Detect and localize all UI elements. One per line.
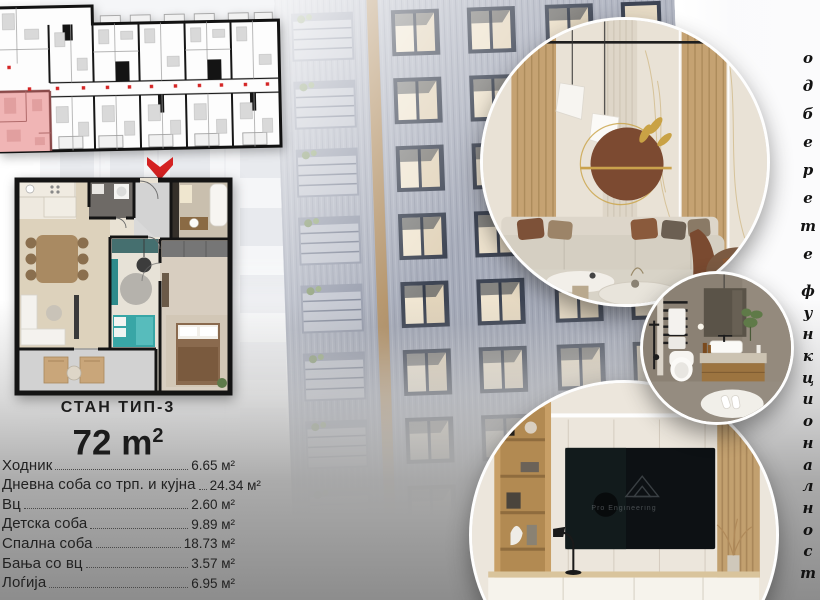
margin-letter: и <box>803 389 814 411</box>
brochure-page: СТАН ТИП-3 72 m2 Ходник 6.65 м² Дневна с… <box>0 0 820 600</box>
margin-letter: л <box>803 476 814 498</box>
margin-letter: ц <box>802 368 814 390</box>
margin-letter: б <box>803 100 814 128</box>
margin-letter: т <box>800 212 816 240</box>
dotted-leader <box>55 469 188 470</box>
margin-letter: н <box>803 433 814 455</box>
margin-letter: д <box>803 72 813 100</box>
room-row: Детска соба 9.89 м² <box>2 513 235 533</box>
margin-vertical-text: одберетефункционалност <box>797 44 819 585</box>
margin-letter: т <box>800 563 816 585</box>
apartment-floor-plan <box>14 177 233 396</box>
room-name: Дневна соба со трп. и кујна <box>2 476 196 493</box>
room-row: Ходник 6.65 м² <box>2 454 235 474</box>
room-area: 9.89 м² <box>191 517 235 533</box>
level-floor-plan <box>0 0 285 154</box>
margin-letter: с <box>803 541 812 563</box>
room-row: Вц 2.60 м² <box>2 493 235 513</box>
unit-type-label: СТАН ТИП-3 <box>0 399 236 417</box>
room-row: Лоѓија 6.95 м² <box>2 572 235 592</box>
margin-letter: к <box>803 346 813 368</box>
highlighted-unit <box>0 91 51 152</box>
living-room-photo-circle <box>480 17 770 307</box>
margin-letter: о <box>803 411 813 433</box>
room-row: Дневна соба со трп. и кујна 24.34 м² <box>2 474 235 494</box>
room-area: 18.73 м² <box>184 536 235 552</box>
room-name: Бања со вц <box>2 555 83 572</box>
bathroom-photo-circle <box>640 271 794 425</box>
room-row: Спална соба 18.73 м² <box>2 532 235 552</box>
tv-watermark-logo: Pro Engineering <box>591 505 656 512</box>
margin-letter: р <box>803 156 814 184</box>
dotted-leader <box>96 547 181 548</box>
room-name: Ходник <box>2 457 52 474</box>
room-name: Детска соба <box>2 515 87 532</box>
dotted-leader <box>24 508 188 509</box>
room-name: Вц <box>2 496 21 513</box>
margin-letter: е <box>803 184 813 212</box>
room-name: Спална соба <box>2 535 93 552</box>
dotted-leader <box>86 567 189 568</box>
room-area-list: Ходник 6.65 м² Дневна соба со трп. и куј… <box>2 454 235 591</box>
room-area: 6.65 м² <box>191 458 235 474</box>
dotted-leader <box>49 587 188 588</box>
margin-letter: ф <box>801 281 815 303</box>
dotted-leader <box>90 528 188 529</box>
margin-letter: о <box>803 520 813 542</box>
room-area: 2.60 м² <box>191 497 235 513</box>
room-area: 3.57 м² <box>191 556 235 572</box>
room-area: 24.34 м² <box>210 478 261 494</box>
room-name: Лоѓија <box>2 574 46 591</box>
dotted-leader <box>199 489 207 490</box>
room-row: Бања со вц 3.57 м² <box>2 552 235 572</box>
margin-letter: е <box>803 128 813 156</box>
margin-letter: у <box>804 303 813 325</box>
margin-letter: н <box>803 498 814 520</box>
margin-letter: н <box>803 324 814 346</box>
margin-letter: а <box>803 455 813 477</box>
room-area: 6.95 м² <box>191 576 235 592</box>
margin-letter: о <box>803 44 813 72</box>
margin-letter: е <box>803 240 813 268</box>
unit-title-block: СТАН ТИП-3 72 m2 <box>0 399 236 461</box>
